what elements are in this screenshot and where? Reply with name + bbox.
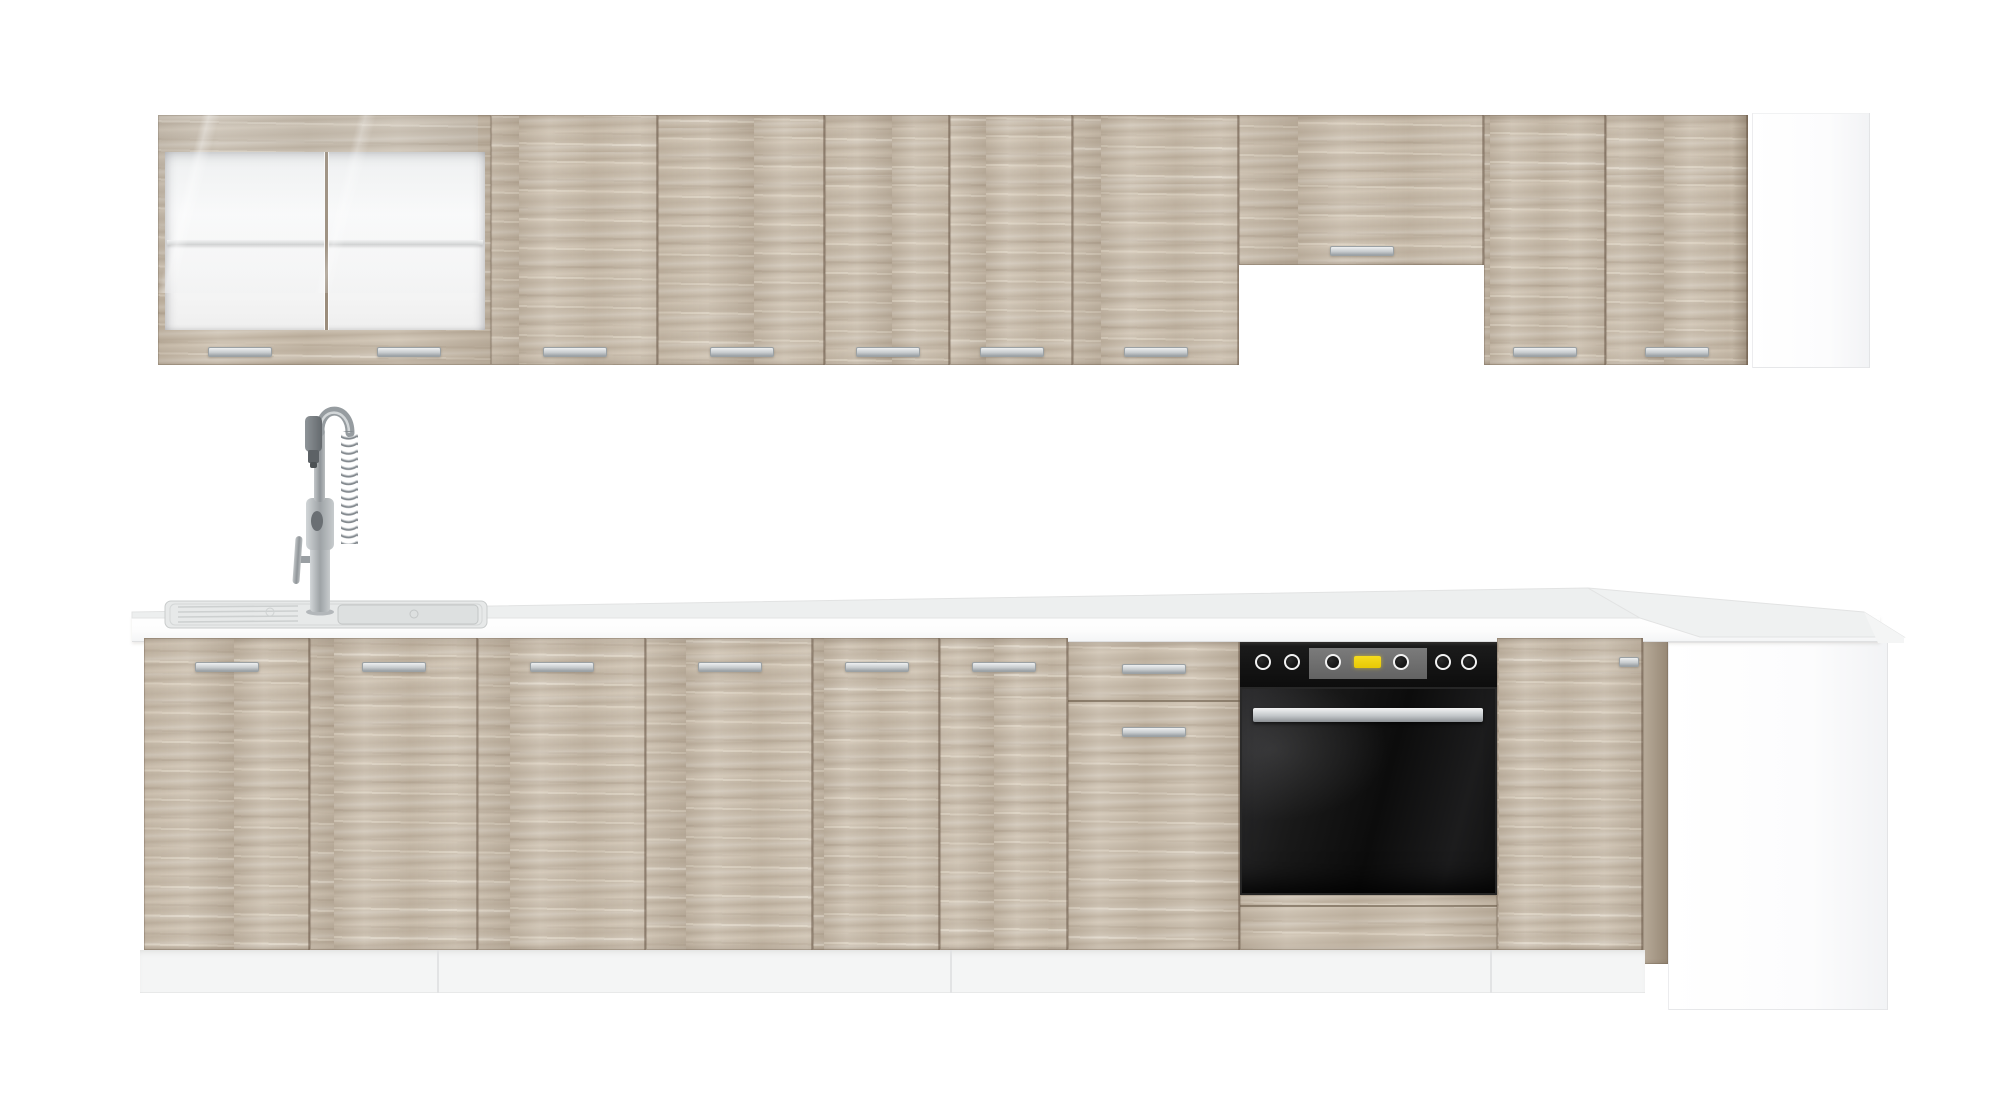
glass-door-handle — [208, 347, 272, 357]
base-cabinet-door — [478, 638, 646, 950]
door-handle — [972, 662, 1036, 672]
oven-knob — [1284, 654, 1300, 670]
hood-gap-cabinet-flap — [1239, 115, 1484, 265]
oven-display — [1354, 656, 1381, 668]
base-cabinet-end-panel — [1668, 642, 1888, 1010]
wall-cabinet-door — [1073, 115, 1239, 365]
door-handle — [980, 347, 1044, 357]
wall-cabinet-door — [825, 115, 950, 365]
wall-cabinet-door — [950, 115, 1073, 365]
pull-down-faucet — [292, 411, 358, 615]
wall-cabinet-end-panel — [1752, 113, 1870, 368]
plinth-joint — [950, 950, 952, 993]
plinth-joint — [437, 950, 439, 993]
door-handle — [1513, 347, 1577, 357]
door-handle — [530, 662, 594, 672]
oven-knob — [1255, 654, 1271, 670]
oven-knob — [1435, 654, 1451, 670]
door-handle — [1645, 347, 1709, 357]
door-handle — [710, 347, 774, 357]
door-handle — [1619, 657, 1639, 667]
oven-knob — [1325, 654, 1341, 670]
oven-base-front — [1240, 895, 1497, 950]
oven-door — [1240, 687, 1497, 895]
base-cabinet-door — [813, 638, 940, 950]
wall-cabinet-door — [1484, 115, 1606, 365]
oven-knob — [1393, 654, 1409, 670]
glass-reflection — [158, 115, 478, 293]
base-cabinet-door — [144, 638, 310, 950]
wall-cabinet-door — [491, 115, 658, 365]
door-handle — [195, 662, 259, 672]
oven-knob — [1461, 654, 1477, 670]
oven-control-panel — [1240, 640, 1497, 687]
glass-door-handle — [377, 347, 441, 357]
door-handle — [1124, 347, 1188, 357]
wall-cabinet-door — [658, 115, 825, 365]
built-in-oven — [1240, 640, 1497, 895]
base-cabinet-door — [310, 638, 478, 950]
oven-door-handle — [1253, 708, 1483, 722]
wall-cabinet-door — [1606, 115, 1748, 365]
faucet-spring-coil — [341, 431, 358, 544]
corner-unit-side-edge — [1643, 638, 1668, 964]
door-handle — [856, 347, 920, 357]
drawer-handle — [1122, 727, 1186, 737]
plinth-kickboard — [140, 950, 1645, 993]
drawer-base-unit — [1068, 638, 1240, 950]
door-handle — [845, 662, 909, 672]
faucet-lever — [292, 536, 302, 584]
base-cabinet-door — [940, 638, 1068, 950]
faucet-spray-head — [305, 416, 322, 452]
oven-base-gap-line — [1240, 905, 1497, 907]
door-handle — [1330, 246, 1394, 256]
corner-base-door — [1497, 638, 1643, 950]
plinth-joint — [1490, 950, 1492, 993]
glass-wall-cabinet — [158, 115, 491, 365]
corner-return-edge — [1732, 115, 1748, 365]
base-cabinet-door — [646, 638, 813, 950]
door-handle — [543, 347, 607, 357]
kitchen-set-photo — [0, 0, 2000, 1100]
drawer-handle — [1122, 664, 1186, 674]
door-handle — [362, 662, 426, 672]
door-handle — [698, 662, 762, 672]
drawer-gap-line — [1068, 700, 1240, 702]
